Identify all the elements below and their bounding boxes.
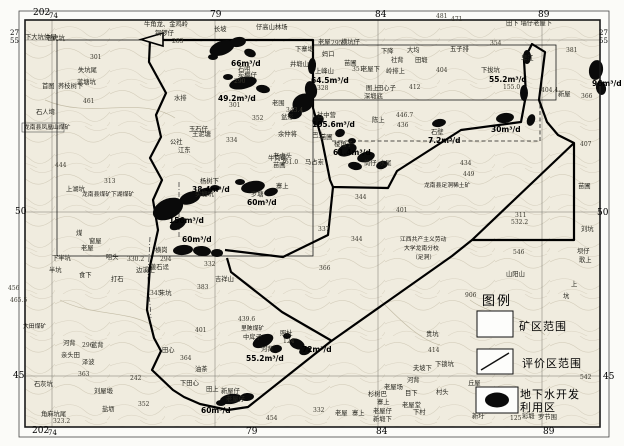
place-name-label: 新圩 bbox=[472, 414, 485, 420]
mine-name-label: 江西共产主义劳动 bbox=[400, 238, 446, 244]
yield-label: 55.2m³/d bbox=[489, 76, 527, 84]
elevation-label: 330.2 bbox=[127, 257, 144, 263]
place-name-label: 水尾 bbox=[379, 161, 392, 167]
place-name-label: 杨树下 bbox=[200, 179, 219, 185]
place-name-label: 半坑 bbox=[49, 268, 62, 274]
place-name-label: 罗塘 bbox=[251, 192, 264, 198]
elevation-label: 366 bbox=[581, 94, 592, 100]
elevation-label: 401 bbox=[396, 208, 407, 214]
grid-coordinate-label: 84 bbox=[375, 11, 386, 20]
elevation-label: 354 bbox=[490, 41, 501, 47]
place-name-label: 煤 bbox=[76, 231, 82, 237]
mine-name-label: 龙南县凤凰山煤矿 bbox=[24, 126, 70, 132]
elevation-label: 366 bbox=[319, 266, 330, 272]
grid-coordinate-label: 50 bbox=[15, 208, 26, 217]
legend-title: 图例 bbox=[482, 290, 512, 309]
grid-coordinate-label: 55 bbox=[599, 38, 608, 45]
place-name-label: 石灰坑 bbox=[34, 382, 53, 388]
yield-label: 30m³/d bbox=[491, 126, 521, 134]
place-name-label: 老屋下 bbox=[361, 67, 380, 73]
place-name-label: 坝仔 bbox=[577, 249, 590, 255]
mine-name-label: 里陂煤矿 bbox=[241, 327, 264, 333]
mine-name-label: 大田煤矿 bbox=[23, 325, 46, 331]
elevation-label: 412 bbox=[409, 85, 420, 91]
elevation-label: 449 bbox=[463, 172, 474, 178]
place-name-label: 朱坑 bbox=[159, 291, 172, 297]
topographic-map: 图例 矿区范围 评价区范围 地下水开发利用区 20274798489202747… bbox=[0, 0, 624, 446]
place-name-label: 歌上 bbox=[579, 258, 592, 264]
grid-coordinate-label: 50 bbox=[597, 209, 608, 218]
place-name-label: 彩塅 bbox=[522, 414, 535, 420]
legend-symbols bbox=[476, 311, 518, 413]
elevation-label: 363 bbox=[78, 372, 89, 378]
elevation-label: 456 bbox=[8, 286, 19, 292]
elevation-label: 454 bbox=[266, 416, 277, 422]
grid-coordinate-label: 74 bbox=[48, 430, 57, 437]
grid-coordinate-label: 45 bbox=[603, 373, 614, 382]
place-name-label: 照杜 bbox=[280, 331, 293, 337]
elevation-label: 301 bbox=[229, 103, 240, 109]
place-name-label: 首图 bbox=[42, 84, 55, 90]
place-name-label: 田心 bbox=[162, 348, 175, 354]
place-name-label: 目下 bbox=[405, 391, 418, 397]
place-name-label: 老屋 bbox=[81, 246, 94, 252]
elevation-label: 155.0 bbox=[503, 85, 520, 91]
place-name-label: 油茶 bbox=[195, 367, 208, 373]
place-name-label: 仔高山林场 bbox=[256, 25, 287, 31]
elevation-label: 471 bbox=[451, 17, 462, 23]
elevation-label: 906 bbox=[465, 293, 476, 299]
place-name-label: 石人塆 bbox=[36, 110, 55, 116]
place-name-label: 老屋仔 bbox=[226, 397, 245, 403]
grid-coordinate-label: 79 bbox=[210, 11, 221, 20]
place-name-label: 下半坑 bbox=[52, 256, 71, 262]
elevation-label: 542 bbox=[580, 375, 591, 381]
place-name-label: 下村 bbox=[413, 410, 426, 416]
place-name-label: 早江 bbox=[521, 56, 534, 62]
yield-label: 60m³/d bbox=[182, 236, 212, 244]
elevation-label: 323.2 bbox=[53, 419, 70, 425]
grid-coordinate-label: 89 bbox=[538, 11, 549, 20]
place-name-label: 田上 bbox=[206, 387, 219, 393]
place-name-label: 长坡 bbox=[214, 27, 227, 33]
elevation-label: 352 bbox=[138, 402, 149, 408]
place-name-label: 咀头 bbox=[106, 255, 119, 261]
place-name-label: 刘屋塅 bbox=[94, 389, 113, 395]
place-name-label: 亲头田 bbox=[61, 353, 80, 359]
place-name-label: 失坑尾 bbox=[78, 68, 97, 74]
place-name-label: 马占岽 bbox=[305, 160, 324, 166]
yield-label: 105.6m³/d bbox=[312, 121, 355, 129]
place-name-label: 盆形 bbox=[281, 115, 294, 121]
place-name-label: 贵坑 bbox=[426, 332, 439, 338]
place-name-label: 吉祥山 bbox=[215, 277, 234, 283]
place-name-label: 妈口 bbox=[322, 52, 335, 58]
elevation-label: 242 bbox=[130, 376, 141, 382]
place-name-label: 老屋 bbox=[318, 40, 331, 46]
mine-name-label: 大学龙南分校 bbox=[404, 247, 439, 253]
place-name-label: 河背 bbox=[407, 378, 420, 384]
grid-coordinate-label: 27 bbox=[10, 30, 19, 37]
grid-coordinate-label: 27 bbox=[599, 30, 608, 37]
grid-coordinate-label: 84 bbox=[376, 428, 387, 437]
yield-label: 61.4m³/d bbox=[333, 149, 371, 157]
elevation-label: 439.6 bbox=[238, 317, 255, 323]
place-name-label: 蓝背 bbox=[91, 343, 104, 349]
place-name-label: 寨上 bbox=[352, 411, 365, 417]
place-name-label: 横岗 bbox=[155, 248, 168, 254]
place-name-label: 下降 bbox=[381, 49, 394, 55]
place-name-label: 横坑仔 bbox=[341, 40, 360, 46]
yield-label: 60m³/d bbox=[247, 199, 277, 207]
place-name-label: 下田心 bbox=[180, 381, 199, 387]
grid-coordinate-label: 74 bbox=[49, 13, 58, 20]
place-name-label: 五子排 bbox=[450, 47, 469, 53]
place-name-label: 寨上 bbox=[377, 400, 390, 406]
place-name-label: 下寨塅 bbox=[295, 47, 314, 53]
yield-label: 72m³/d bbox=[302, 346, 332, 354]
place-name-label: 田心子 bbox=[377, 86, 396, 92]
elevation-label: 313 bbox=[104, 179, 115, 185]
elevation-label: 294 bbox=[160, 257, 171, 263]
yield-label: 7.2m³/d bbox=[428, 137, 461, 145]
elevation-label: 407 bbox=[580, 142, 591, 148]
elevation-label: 364 bbox=[180, 356, 191, 362]
elevation-label: 332 bbox=[204, 262, 215, 268]
place-name-label: 黄石迳 bbox=[150, 265, 169, 271]
place-name-label: 泽波 bbox=[82, 360, 95, 366]
place-name-label: 新塅下 bbox=[373, 417, 392, 423]
place-name-label: 井塅山 bbox=[290, 62, 309, 68]
place-name-label: 杉树巴 bbox=[368, 392, 387, 398]
place-name-label: 蓝塘坑 bbox=[77, 80, 96, 86]
place-name-label: 实塅坑 bbox=[195, 192, 214, 198]
yield-label: 156m³/d bbox=[169, 217, 204, 225]
place-name-label: 罗节围 bbox=[538, 415, 557, 421]
place-name-label: 山阳山 bbox=[506, 272, 525, 278]
place-name-label: 田下 墙仔老屋下 bbox=[506, 21, 552, 27]
elevation-label: 301 bbox=[90, 55, 101, 61]
elevation-label: 125 bbox=[510, 416, 521, 422]
grid-coordinate-label: 79 bbox=[246, 428, 257, 437]
place-name-label: 河背 bbox=[63, 341, 76, 347]
place-name-label: 铜锣仔 bbox=[155, 31, 174, 37]
place-name-label: 苗圃 bbox=[273, 163, 286, 169]
elevation-label: 446.7 bbox=[396, 113, 413, 119]
place-name-label: 河背 bbox=[261, 347, 274, 353]
place-name-label: 苗圃 bbox=[578, 184, 591, 190]
elevation-label: 332 bbox=[313, 408, 324, 414]
place-name-label: 新屋仔 bbox=[221, 389, 240, 395]
elevation-label: 381 bbox=[566, 48, 577, 54]
place-name-label: 村头 bbox=[436, 390, 449, 396]
place-name-label: 坑 bbox=[563, 294, 569, 300]
place-name-label: 王泥塘 bbox=[192, 132, 211, 138]
elevation-label: 436 bbox=[397, 123, 408, 129]
grid-coordinate-label: 55 bbox=[10, 38, 19, 45]
place-name-label: 岭排上 bbox=[386, 69, 405, 75]
place-name-label: 深塅底 bbox=[364, 94, 383, 100]
elevation-label: 481 bbox=[436, 14, 447, 20]
place-name-label: 苗圃 bbox=[320, 135, 333, 141]
yield-label: 64.5m³/d bbox=[311, 77, 349, 85]
mine-name-label: 龙南县足洞稀土矿 bbox=[424, 184, 470, 190]
place-name-label: 老围 bbox=[272, 101, 285, 107]
legend-item-groundwater: 地下水开发利用区 bbox=[520, 389, 582, 414]
mine-name-label: 龙南县煤矿下湖煤矿 bbox=[82, 193, 134, 199]
grid-coordinate-label: 89 bbox=[543, 428, 554, 437]
place-name-label: 陈上 bbox=[372, 118, 385, 124]
elevation-label: 401 bbox=[195, 328, 206, 334]
grid-coordinate-label: 202 bbox=[32, 427, 49, 436]
elevation-label: 283 bbox=[172, 39, 183, 45]
place-name-label: 大均 bbox=[407, 48, 420, 54]
place-name-label: 新屋 bbox=[558, 92, 571, 98]
elevation-label: 461 bbox=[83, 99, 94, 105]
place-name-label: 石壁 bbox=[431, 130, 444, 136]
legend-item-evaluation-area: 评价区范围 bbox=[522, 355, 582, 371]
place-name-label: 楼角子 bbox=[334, 142, 353, 148]
place-name-label: 水排 bbox=[174, 96, 187, 102]
elevation-label: 546 bbox=[513, 250, 524, 256]
place-name-label: 中戽子 bbox=[243, 335, 262, 341]
place-name-label: 夫坡下 bbox=[413, 366, 432, 372]
elevation-label: 532.2 bbox=[511, 220, 528, 226]
place-name-label: 丘屋 bbox=[468, 381, 481, 387]
place-name-label: 牛角龙、金鸡岭 bbox=[144, 22, 188, 28]
elevation-label: 434 bbox=[460, 161, 471, 167]
place-name-label: 余仲将 bbox=[278, 132, 297, 138]
elevation-label: 383 bbox=[197, 285, 208, 291]
place-name-label: 筒仔 bbox=[364, 161, 377, 167]
elevation-label: 465.5 bbox=[10, 298, 27, 304]
grid-coordinate-label: 45 bbox=[13, 372, 24, 381]
place-name-label: 下锁坑 bbox=[435, 362, 454, 368]
elevation-label: 334 bbox=[226, 138, 237, 144]
elevation-label: 344 bbox=[351, 237, 362, 243]
elevation-label: 328 bbox=[317, 86, 328, 92]
place-name-label: 下拔坑 bbox=[481, 68, 500, 74]
place-name-label: 食下 bbox=[79, 273, 92, 279]
place-name-label: 打石 bbox=[111, 277, 124, 283]
legend-item-mine-area: 矿区范围 bbox=[519, 318, 567, 334]
legend-symbol-mine-area bbox=[477, 311, 513, 337]
place-name-label: 老屋 bbox=[335, 411, 348, 417]
elevation-label: 290 bbox=[234, 79, 245, 85]
place-name-label: 刘坑 bbox=[581, 227, 594, 233]
place-name-label: 江东 bbox=[178, 148, 191, 154]
place-name-label: 公社 bbox=[170, 140, 183, 146]
elevation-label: 337 bbox=[318, 227, 329, 233]
place-name-label: 上 bbox=[571, 282, 577, 288]
grid-coordinate-label: 202 bbox=[33, 9, 50, 18]
elevation-label: 404.4 bbox=[541, 88, 558, 94]
place-name-label: 寨上 bbox=[276, 184, 289, 190]
place-name-label: 社中营 bbox=[317, 113, 336, 119]
yield-label: 60m³/d bbox=[201, 407, 231, 415]
elevation-label: 124 bbox=[283, 339, 294, 345]
place-name-label: 老屋仔 bbox=[373, 409, 392, 415]
mine-name-label: （足洞） bbox=[412, 256, 435, 262]
place-name-label: 社背 bbox=[391, 58, 404, 64]
elevation-label: 444 bbox=[55, 163, 66, 169]
place-name-label: 盐坜 bbox=[102, 407, 115, 413]
yield-label: 96m³/d bbox=[592, 80, 622, 88]
elevation-label: 352 bbox=[252, 116, 263, 122]
legend-black-ellipse bbox=[485, 393, 509, 408]
yield-label: 55.2m³/d bbox=[246, 355, 284, 363]
elevation-label: 404 bbox=[436, 68, 447, 74]
place-name-label: 老虎坑 bbox=[46, 36, 65, 42]
place-name-label: 田塅 bbox=[415, 58, 428, 64]
elevation-label: 414 bbox=[428, 348, 439, 354]
elevation-label: 344 bbox=[355, 195, 366, 201]
place-name-label: 上峰山 bbox=[315, 69, 334, 75]
